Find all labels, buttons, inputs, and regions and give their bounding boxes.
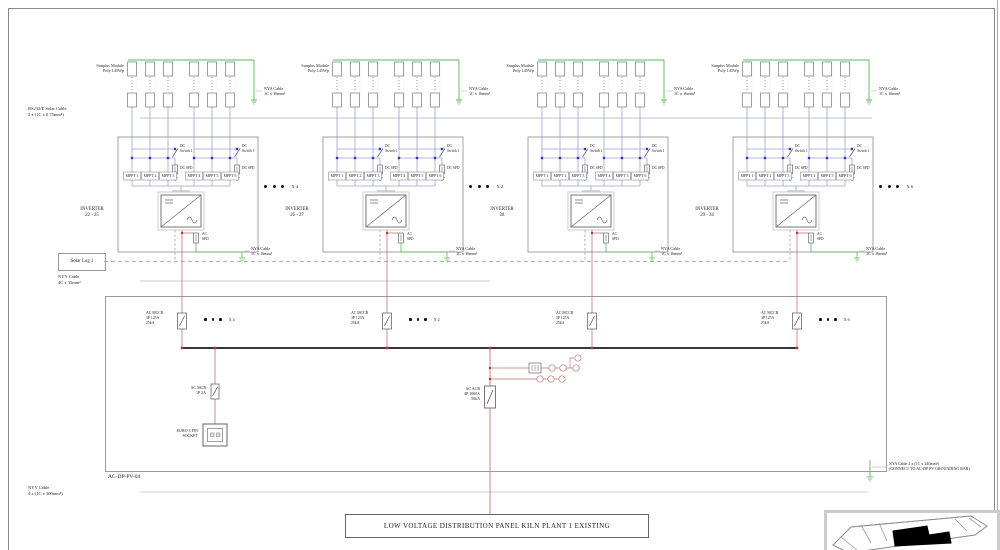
ac-junction-dot <box>386 232 388 234</box>
single-line-diagram: Sunplus ModulePoly 145Wp NYA Cable1C x 1… <box>0 0 1000 550</box>
bus-tap-dot <box>181 347 184 350</box>
inverter-symbol <box>568 191 614 230</box>
ac-junction-dot <box>591 232 593 234</box>
inverter-label: INVERTER26 - 27 <box>267 207 327 219</box>
dc-spd-label: DC SPD <box>652 166 664 171</box>
mccb-label: AC MCCB3P 125A25kA <box>556 311 573 326</box>
mccb-label: AC MCCB3P 125A25kA <box>351 311 368 326</box>
solar-log-box: Solar Log 1 <box>58 253 106 271</box>
pv-module-symbols <box>743 62 850 107</box>
key-plan-drawing <box>827 513 997 550</box>
ac-spd-label: ACSPD <box>407 232 414 241</box>
dc-switch-label: DCSwitch 1 <box>447 144 460 153</box>
inverter-symbol <box>158 191 204 230</box>
mppt-label: MPPT 3 <box>775 173 792 180</box>
module-label: Sunplus ModulePoly 145Wp <box>687 63 739 74</box>
mppt-label: MPPT 5 <box>409 173 426 180</box>
mccb-multiplier: X 2 <box>409 316 440 323</box>
mccb-symbol <box>588 313 597 329</box>
series-module-dots <box>132 63 235 98</box>
dc-switch-label: DCSwitch 1 <box>590 144 603 153</box>
inverter-symbol <box>363 191 409 230</box>
inverter-symbol <box>773 191 819 230</box>
inverter-box-outline <box>528 137 668 252</box>
mppt-label: MPPT 2 <box>552 173 569 180</box>
mccb-symbol <box>793 313 802 329</box>
ac-output <box>182 230 194 348</box>
rs232-cable-label: RS232/E Solar Cable2 x (1C x 0.75mm²) <box>28 106 67 118</box>
ac-spd-label: ACSPD <box>817 232 824 241</box>
group-wiring <box>673 0 923 360</box>
mppt-label: MPPT 6 <box>427 173 444 180</box>
mppt-label: MPPT 1 <box>124 173 141 180</box>
string-grounding <box>743 60 872 104</box>
series-module-dots <box>337 63 440 98</box>
socket-label: EURO 3 PINSOCKET <box>162 428 198 438</box>
mppt-label: MPPT 6 <box>632 173 649 180</box>
dc-switch-label: DCSwitch 1 <box>385 144 398 153</box>
inverter-label: INVERTER28 <box>472 207 532 219</box>
dc-switch-label: DCSwitch 1 <box>652 144 665 153</box>
module-label: Sunplus ModulePoly 145Wp <box>277 63 329 74</box>
mppt-label: MPPT 6 <box>222 173 239 180</box>
ac-output <box>387 230 399 348</box>
inverter-multiplier: X 6 <box>879 183 913 190</box>
dc-switch-label: DCSwitch 1 <box>180 144 193 153</box>
inverter-label: INVERTER22 - 25 <box>62 207 122 219</box>
mppt-label: MPPT 4 <box>186 173 203 180</box>
mppt-label: MPPT 1 <box>534 173 551 180</box>
inverter-box-outline <box>118 137 258 252</box>
ac-ground-cable-label: NYA Cable1C x 16mm² <box>866 246 887 257</box>
ac-cable-label: NYY Cable4C x 35mm² <box>58 274 81 286</box>
mppt-label: MPPT 5 <box>819 173 836 180</box>
string-grounding <box>538 60 667 104</box>
mccb-symbol <box>178 313 187 329</box>
ac-output <box>797 230 809 348</box>
acb-label: AC ACB4P 1000A50kA <box>448 386 480 401</box>
series-module-dots <box>747 63 850 98</box>
ac-output <box>592 230 604 348</box>
dc-switch-label: DCSwitch 1 <box>242 144 255 153</box>
mccb-multiplier: X 6 <box>819 316 850 323</box>
mppt-label: MPPT 2 <box>757 173 774 180</box>
dc-spd-label: DC SPD <box>857 166 869 171</box>
mccb-multiplier: X 4 <box>204 316 235 323</box>
dc-spd-label: DC SPD <box>447 166 459 171</box>
lv-distribution-panel-box: LOW VOLTAGE DISTRIBUTION PANEL KILN PLAN… <box>345 514 649 538</box>
string-grounding <box>128 60 257 104</box>
mppt-label: MPPT 5 <box>204 173 221 180</box>
mccb-label: AC MCCB3P 125A25kA <box>146 311 163 326</box>
main-cable-label: NYY Cable4 x (1C x 300mm²) <box>28 485 63 497</box>
mppt-label: MPPT 4 <box>596 173 613 180</box>
ac-spd-label: ACSPD <box>202 232 209 241</box>
key-plan-inset <box>824 510 1000 550</box>
mppt-label: MPPT 2 <box>347 173 364 180</box>
sheet-edge-line <box>997 0 998 550</box>
bus-tap-dot <box>386 347 389 350</box>
mppt-label: MPPT 1 <box>329 173 346 180</box>
mppt-label: MPPT 4 <box>391 173 408 180</box>
string-grounding <box>333 60 462 104</box>
module-label: Sunplus ModulePoly 145Wp <box>72 63 124 74</box>
dc-switch-label: DCSwitch 1 <box>795 144 808 153</box>
dc-spd-label: DC SPD <box>385 166 397 171</box>
inverter-group: Sunplus ModulePoly 145Wp NYA Cable1C x 1… <box>673 0 923 360</box>
bus-tap-dot <box>796 347 799 350</box>
dc-spd-label: DC SPD <box>180 166 192 171</box>
mppt-label: MPPT 1 <box>739 173 756 180</box>
mppt-label: MPPT 3 <box>160 173 177 180</box>
string-ground-cable-label: NYA Cable1C x 16mm² <box>879 86 900 97</box>
pv-module-symbols <box>538 62 645 107</box>
mppt-label: MPPT 2 <box>142 173 159 180</box>
pv-module-symbols <box>128 62 235 107</box>
mppt-label: MPPT 3 <box>570 173 587 180</box>
mccb-symbol <box>383 313 392 329</box>
mppt-label: MPPT 6 <box>837 173 854 180</box>
bus-tap-dot <box>591 347 594 350</box>
module-label: Sunplus ModulePoly 145Wp <box>482 63 534 74</box>
dc-spd-label: DC SPD <box>242 166 254 171</box>
grounding-cable-label: NYA Cable 2 x (1C x 240mm²)(CONNECT TO A… <box>889 461 970 471</box>
dc-switch-label: DCSwitch 1 <box>857 144 870 153</box>
ac-junction-dot <box>796 232 798 234</box>
dc-spd-label: DC SPD <box>590 166 602 171</box>
inverter-box-outline <box>323 137 463 252</box>
mcb-label: AC MCB1P 2A <box>178 385 206 395</box>
dc-spd-label: DC SPD <box>795 166 807 171</box>
ac-spd-label: ACSPD <box>612 232 619 241</box>
mppt-label: MPPT 5 <box>614 173 631 180</box>
inverter-box-outline <box>733 137 873 252</box>
mccb-label: AC MCCB3P 125A25kA <box>761 311 778 326</box>
series-module-dots <box>542 63 645 98</box>
ac-junction-dot <box>181 232 183 234</box>
mppt-label: MPPT 3 <box>365 173 382 180</box>
pv-module-symbols <box>333 62 440 107</box>
mppt-label: MPPT 4 <box>801 173 818 180</box>
panel-id-label: AC-DP-PV-04 <box>108 474 140 481</box>
inverter-label: INVERTER29 - 34 <box>677 207 737 219</box>
